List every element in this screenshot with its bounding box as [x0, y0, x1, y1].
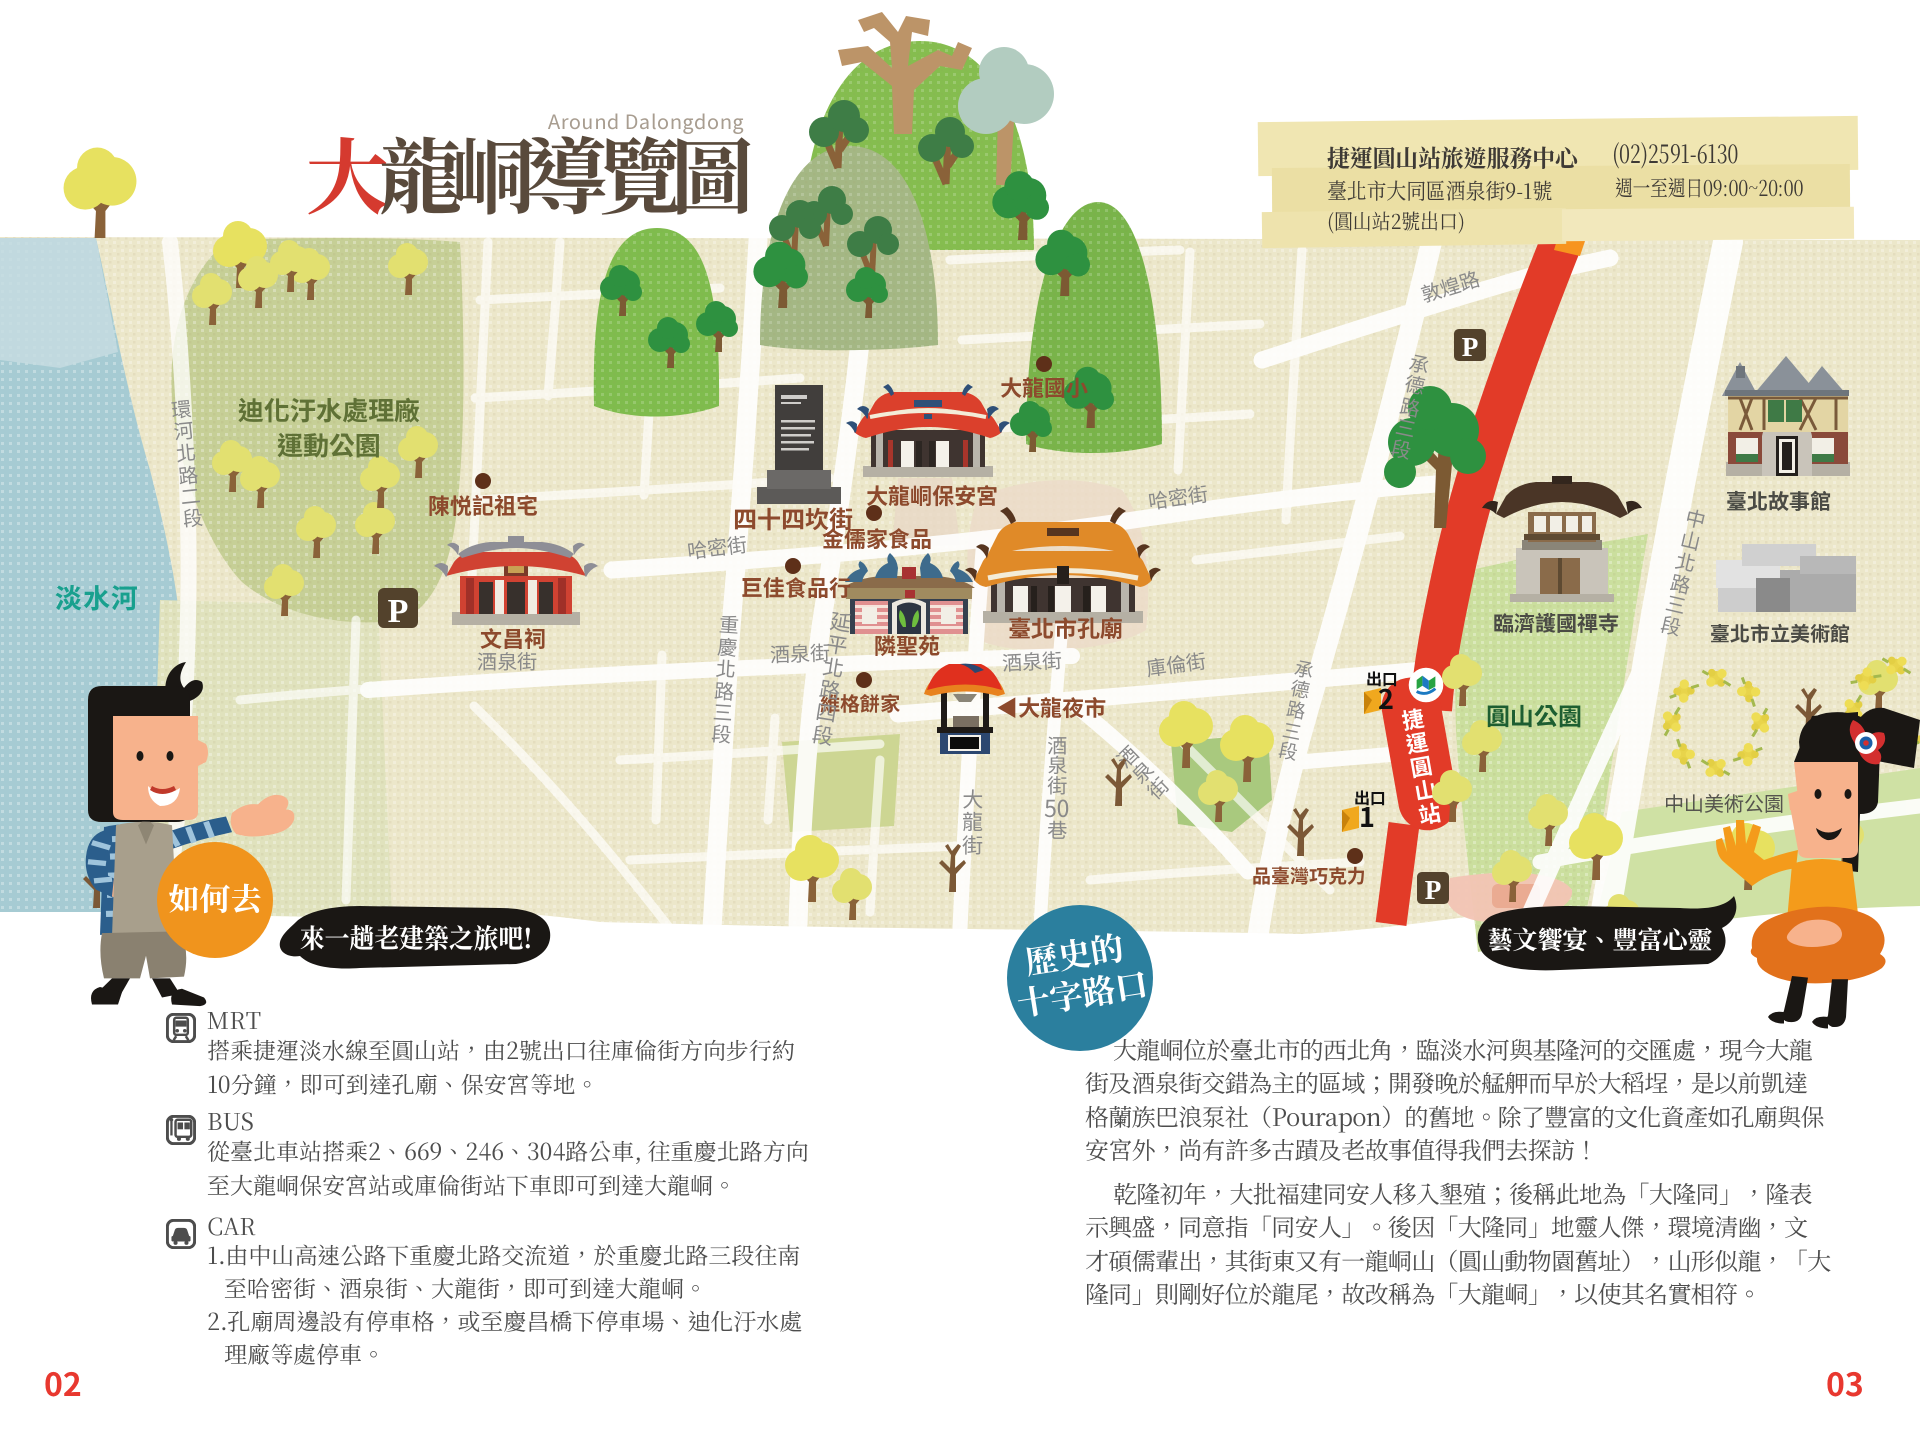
svg-text:1: 1 [1359, 796, 1375, 835]
svg-text:2: 2 [1378, 678, 1394, 717]
svg-text:如何去: 如何去 [169, 874, 262, 919]
svg-text:來一趟老建築之旅吧!: 來一趟老建築之旅吧! [300, 918, 532, 957]
svg-text:藝文饗宴、豐富心靈: 藝文饗宴、豐富心靈 [1487, 921, 1712, 957]
